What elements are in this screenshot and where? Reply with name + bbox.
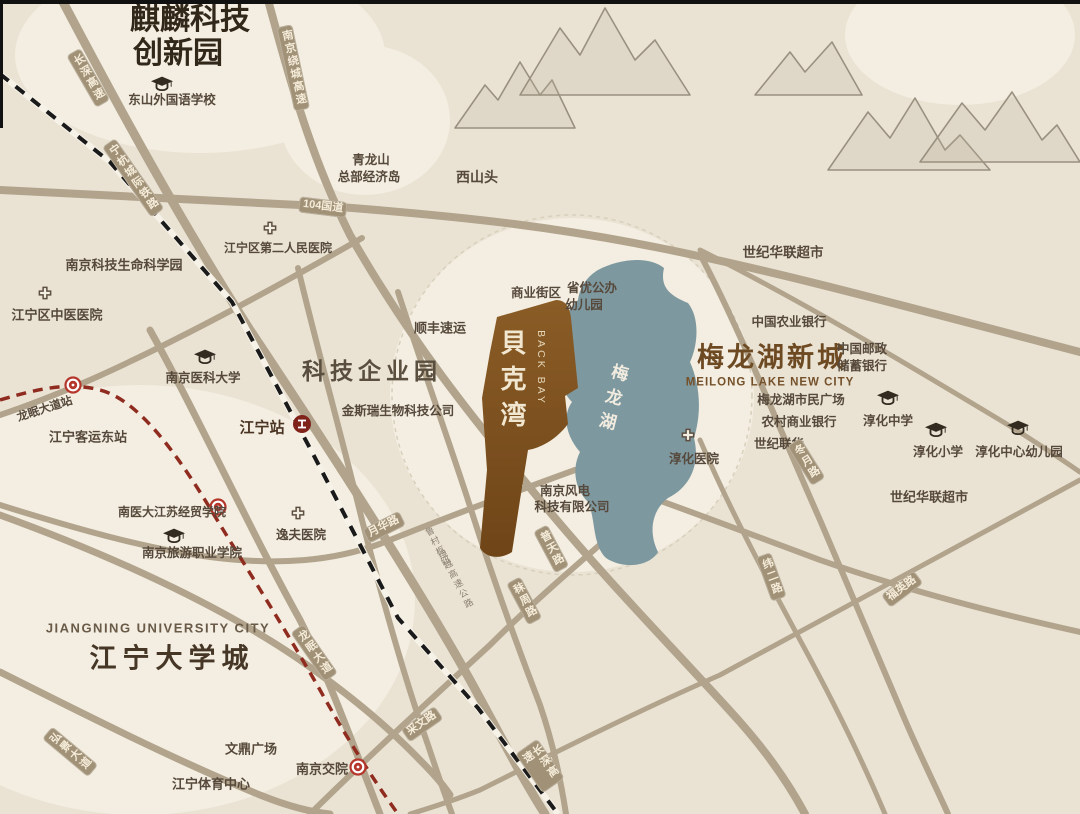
label-jiangning-university-city-cn: 江宁大学城 [90, 643, 255, 674]
label-backbay-cn: 貝克湾 [496, 329, 526, 437]
label-jiangning-university-city-en: JIANGNING UNIVERSITY CITY [46, 622, 270, 637]
road-changshen-expwy-north: 长深高速 [66, 48, 109, 108]
label-chunhua-kindergarten: 淳化中心幼儿园 [975, 445, 1063, 459]
label-qilin-park-line2: 创新园 [133, 37, 223, 72]
label-wind-power-line2: 科技有限公司 [534, 500, 609, 514]
label-rural-bank: 农村商业银行 [761, 415, 836, 429]
label-tourism-college: 南京旅游职业学院 [142, 546, 242, 560]
left-edge-bar [0, 0, 3, 128]
road-weier-road: 纬二路 [756, 552, 787, 601]
label-shiji-hualian-east: 世纪华联超市 [890, 491, 968, 506]
label-wind-power-line1: 南京风电 [540, 484, 590, 498]
label-xishantou: 西山头 [456, 169, 498, 185]
label-backbay-en: BACK BAY [535, 330, 547, 406]
label-qinglongshan-line2: 总部经济岛 [338, 170, 401, 184]
label-wending-plaza: 文鼎广场 [225, 743, 277, 758]
label-kindergarten-line2: 幼儿园 [565, 298, 603, 312]
road-raocheng-expwy: 南京绕城高速 [276, 24, 309, 111]
label-citizen-plaza: 梅龙湖市民广场 [757, 393, 845, 407]
road-fuying-road: 福英路 [881, 570, 923, 607]
label-agri-bank: 中国农业银行 [751, 315, 826, 329]
label-jiangning-east-bus-station: 江宁客运东站 [49, 431, 127, 446]
label-life-science-park: 南京科技生命科学园 [65, 259, 182, 274]
label-tech-enterprise-park: 科技企业园 [302, 358, 442, 384]
road-yuehua-road: 月华路 [362, 511, 406, 543]
label-commercial-block: 商业街区 [511, 286, 561, 300]
label-qinglongshan-line1: 青龙山 [352, 153, 390, 167]
road-changshen-expwy-south: 长深高速 [515, 739, 565, 794]
label-meilong-lake: 梅龙湖 [592, 361, 629, 439]
label-postal-bank-line1: 中国邮政 [837, 342, 887, 356]
road-hongjing-avenue: 弘景大道 [42, 727, 98, 777]
label-longmian-avenue-station: 龙眠大道站 [16, 395, 75, 425]
label-jiangning-2nd-hospital: 江宁区第二人民医院 [224, 242, 332, 256]
top-edge-bar [0, 0, 1080, 4]
location-map: 麒麟科技创新园科技企业园梅龙湖新城MEILONG LAKE NEW CITY江宁… [0, 0, 1080, 814]
labels-layer: 麒麟科技创新园科技企业园梅龙湖新城MEILONG LAKE NEW CITY江宁… [0, 0, 1080, 814]
label-chunhua-primary-school: 淳化小学 [913, 445, 963, 459]
label-yifu-hospital: 逸夫医院 [276, 528, 326, 542]
road-mozhou-road: 秣周路 [506, 577, 542, 626]
label-dongshan-foreign-school: 东山外国语学校 [128, 93, 216, 107]
label-jiangning-railway-station: 江宁站 [239, 419, 284, 436]
label-postal-bank-line2: 储蓄银行 [837, 359, 887, 373]
label-nymu-jsjm-college: 南医大江苏经贸学院 [118, 506, 226, 520]
label-shiji-hualian-north: 世纪华联超市 [743, 245, 824, 261]
label-nanjing-medical-univ: 南京医科大学 [165, 371, 240, 385]
label-jiangning-sports-center: 江宁体育中心 [172, 778, 250, 793]
label-kindergarten-line1: 省优公办 [567, 281, 617, 295]
rail-ninghang-line: 宁杭城际铁路 [102, 138, 164, 217]
road-putian-road: 普天路 [533, 525, 569, 574]
label-meilong-new-city-cn: 梅龙湖新城 [697, 342, 847, 373]
road-caiwen-road: 采文路 [401, 706, 444, 742]
road-g104: 104国道 [298, 196, 348, 217]
road-dongyue-road: 冬月路 [787, 438, 825, 486]
label-tcm-hospital: 江宁区中医医院 [11, 309, 102, 324]
label-meilong-new-city-en: MEILONG LAKE NEW CITY [686, 376, 855, 389]
label-chunhua-hospital: 淳化医院 [669, 452, 719, 466]
label-sf-express: 顺丰速运 [414, 322, 466, 337]
tiny-raoyue-expwy: 绕越高速公路 [432, 544, 479, 616]
label-chunhua-middle-school: 淳化中学 [863, 414, 913, 428]
label-nanjing-jiaoyuan: 南京交院 [296, 763, 348, 778]
road-longmian-avenue: 龙眠大道 [290, 624, 337, 682]
label-genscript: 金斯瑞生物科技公司 [342, 404, 455, 418]
label-qilin-park-line1: 麒麟科技 [130, 3, 250, 38]
